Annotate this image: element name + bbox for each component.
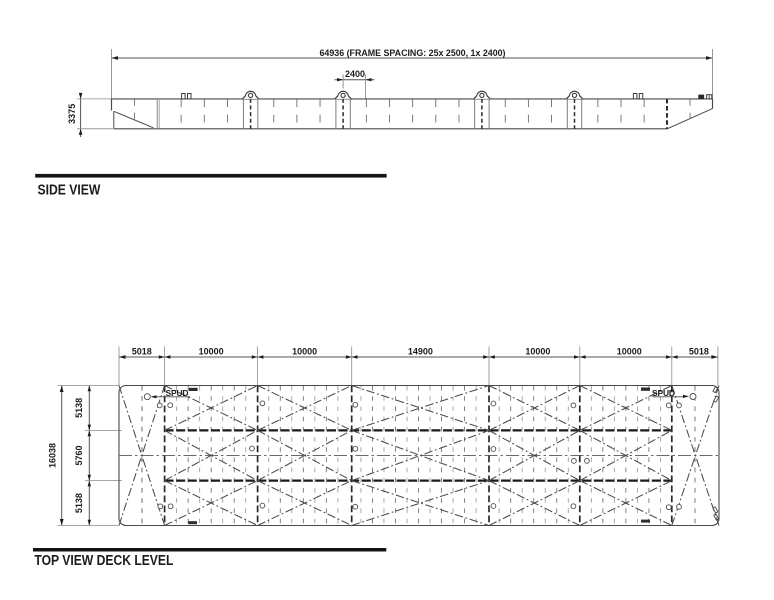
svg-text:5018: 5018 bbox=[689, 346, 709, 356]
svg-text:SIDE VIEW: SIDE VIEW bbox=[38, 181, 101, 198]
svg-text:TOP VIEW DECK LEVEL: TOP VIEW DECK LEVEL bbox=[34, 552, 173, 569]
svg-text:3375: 3375 bbox=[67, 104, 77, 124]
svg-text:5138: 5138 bbox=[74, 493, 84, 513]
svg-text:10000: 10000 bbox=[199, 346, 224, 356]
svg-text:10000: 10000 bbox=[292, 346, 317, 356]
svg-text:5018: 5018 bbox=[132, 346, 152, 356]
svg-text:10000: 10000 bbox=[617, 346, 642, 356]
svg-text:10000: 10000 bbox=[525, 346, 550, 356]
svg-text:16038: 16038 bbox=[47, 443, 57, 468]
svg-text:5138: 5138 bbox=[74, 398, 84, 418]
svg-text:14900: 14900 bbox=[408, 346, 433, 356]
svg-text:2400: 2400 bbox=[345, 69, 365, 79]
svg-text:5760: 5760 bbox=[74, 445, 84, 465]
svg-text:64936 (FRAME SPACING: 25x 2500: 64936 (FRAME SPACING: 25x 2500, 1x 2400) bbox=[320, 48, 506, 59]
